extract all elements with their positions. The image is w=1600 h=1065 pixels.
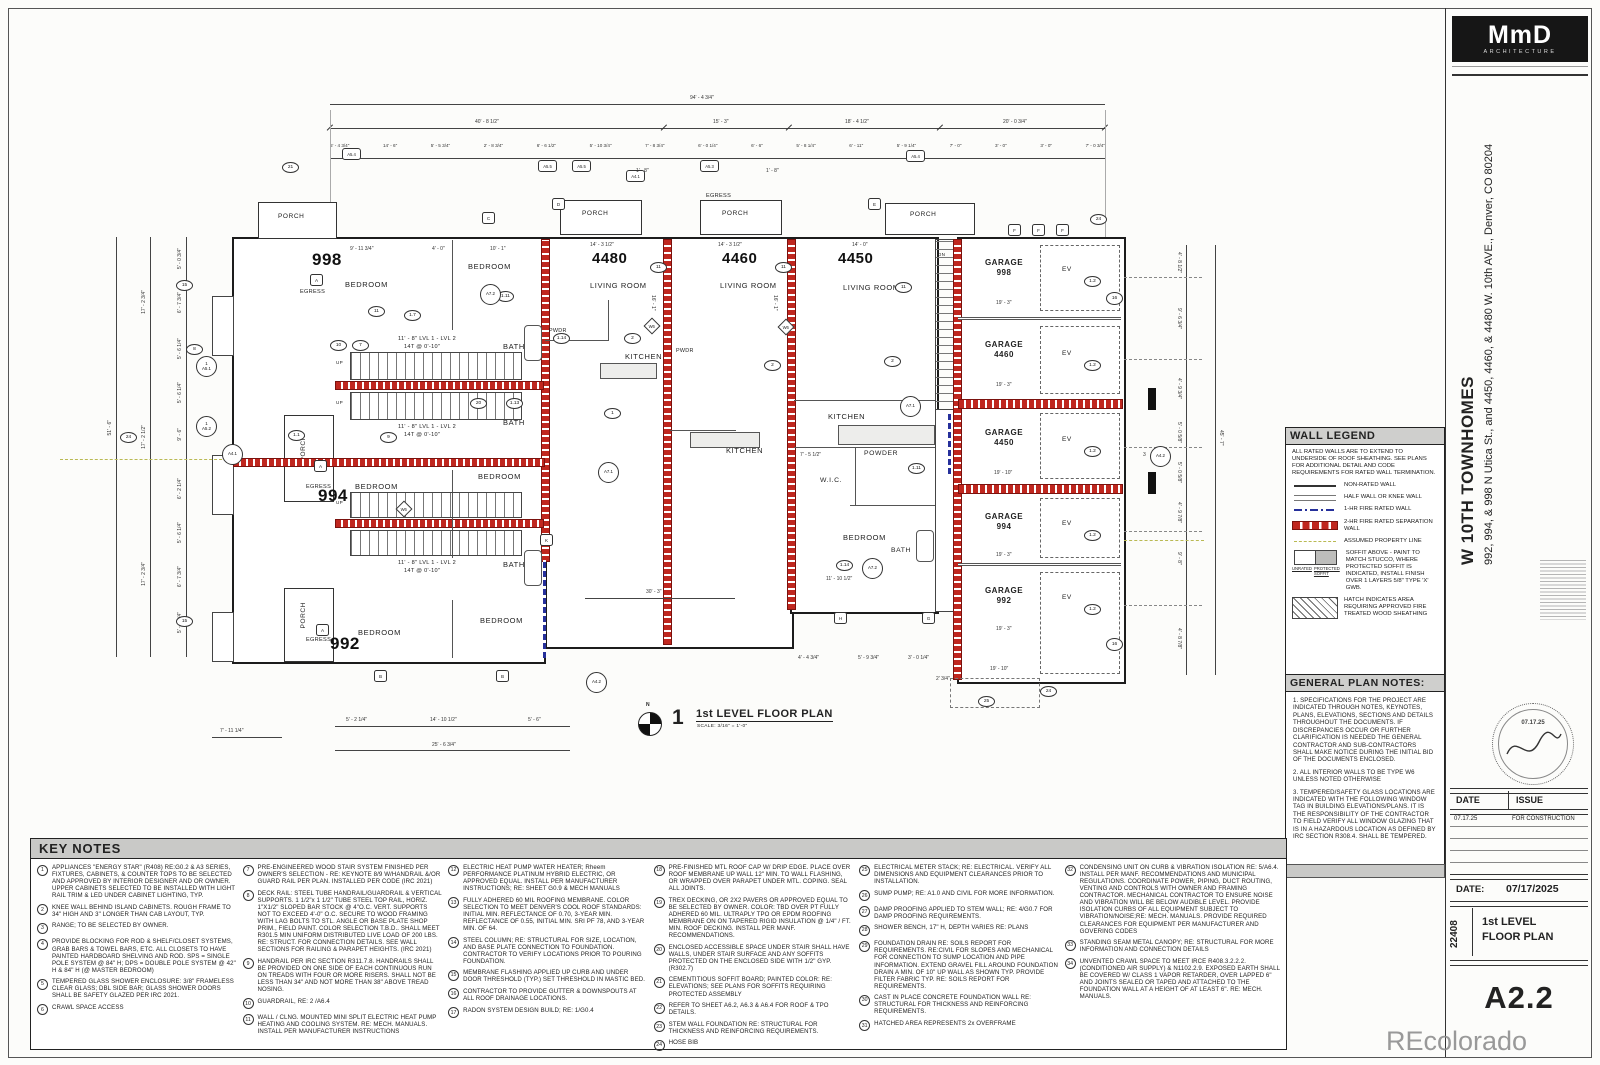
key-notes-column: 12ELECTRIC HEAT PUMP WATER HEATER; Rheem…	[448, 864, 648, 1051]
table-row-line	[1450, 850, 1588, 851]
key-note: 34UNVENTED CRAWL SPACE TO MEET IRCE R408…	[1065, 958, 1282, 1000]
keynote-bubble: 11	[650, 262, 667, 273]
centerline	[1124, 605, 1202, 606]
porch-label: PORCH	[300, 602, 307, 628]
key-note: 1APPLIANCES "ENERGY STAR" (R408) RE:G0.2…	[37, 864, 237, 899]
key-note: 13FULLY ADHERED 60 MIL ROOFING MEMBRANE.…	[448, 897, 648, 932]
dimension-label: 14' - 3 1/2"	[718, 242, 742, 248]
centerline	[1124, 359, 1202, 360]
sheet-title-line1: 1st LEVEL	[1482, 916, 1536, 928]
egress-label: EGRESS	[706, 193, 731, 199]
dimension-label: 5' - 6 1/4"	[177, 522, 183, 543]
key-note: 12ELECTRIC HEAT PUMP WATER HEATER; Rheem…	[448, 864, 648, 892]
dimension-label: 7' - 11 1/4"	[220, 728, 243, 734]
stair-note: 11' - 8" LVL 1 - LVL 2	[398, 560, 456, 566]
key-note: 2KNEE WALL BEHIND ISLAND CABINETS. ROUGH…	[37, 904, 237, 918]
legend-label: HATCH INDICATES AREA REQUIRING APPROVED …	[1344, 597, 1438, 618]
grid-tag: B	[374, 670, 387, 682]
bathtub	[524, 325, 542, 361]
wall-line	[670, 430, 736, 431]
project-number: 22408	[1449, 920, 1460, 948]
room-label: BEDROOM	[345, 280, 388, 289]
stair-note: 14T @ 0'-10"	[404, 432, 440, 438]
fire-wall-2hr	[787, 239, 796, 610]
architect-stamp: 07.17.25	[1492, 703, 1574, 785]
room-label: BEDROOM	[843, 533, 886, 542]
key-note: 16CONTRACTOR TO PROVIDE GUTTER & DOWNSPO…	[448, 988, 648, 1002]
garage-label: GARAGE998	[972, 258, 1036, 278]
stair-note: 14T @ 0'-10"	[404, 344, 440, 350]
issue-header: ISSUE	[1516, 795, 1543, 805]
dimension-label: 10' - 1"	[490, 246, 506, 252]
dimension-label: 19' - 3"	[996, 552, 1012, 558]
legend-label: SOFFIT ABOVE - PAINT TO MATCH STUCCO, WH…	[1346, 550, 1438, 592]
fire-wall-2hr	[958, 484, 1123, 494]
copyright-microtext	[1540, 560, 1586, 620]
dimension-label: 17' - 2 3/4"	[141, 562, 147, 586]
fire-wall-1hr	[948, 412, 951, 474]
keynote-bubble: 1.7	[404, 310, 421, 321]
key-notes-column: 25ELECTRICAL METER STACK; RE: ELECTRICAL…	[859, 864, 1059, 1051]
room-label: W.I.C.	[820, 477, 842, 484]
general-note: 2. ALL INTERIOR WALLS TO BE TYPE W6 UNLE…	[1293, 769, 1437, 784]
garage-label: GARAGE992	[972, 586, 1036, 606]
room-label: BEDROOM	[355, 482, 398, 491]
ev-label: EV	[1062, 520, 1072, 527]
stair-run	[350, 352, 522, 380]
porch-label: PORCH	[910, 211, 936, 218]
key-note: 21CEMENTITIOUS SOFFIT BOARD; PAINTED COL…	[654, 976, 854, 997]
rule	[1450, 874, 1588, 880]
two-hr-wall-symbol	[1292, 521, 1338, 530]
dimension-label: 6' - 7 3/4"	[177, 566, 183, 587]
dimension-label: 19' - 10"	[994, 470, 1012, 476]
keynote-bubble: 7	[352, 340, 369, 351]
dimension-label: 5' - 6 1/4"	[177, 382, 183, 403]
dimension-label: 17' - 2 1/2"	[141, 425, 147, 449]
dn-label: DN	[938, 252, 945, 257]
rule	[1450, 960, 1588, 966]
view-title: 1st LEVEL FLOOR PLAN	[696, 708, 833, 722]
dimension-label: 1' - 8"	[766, 168, 779, 174]
general-note: 3. TEMPERED/SAFETY GLASS LOCATIONS ARE I…	[1293, 789, 1437, 841]
room-label: BATH	[503, 342, 525, 351]
dimension-label: 5' - 9 3/4"	[858, 655, 879, 661]
key-note: 25ELECTRICAL METER STACK; RE: ELECTRICAL…	[859, 864, 1059, 885]
wall-line	[855, 447, 856, 505]
room-label: PWDR	[676, 348, 694, 354]
keynote-bubble: 20	[470, 398, 487, 409]
key-note: 5TEMPERED GLASS SHOWER ENCLOSURE: 3/8" F…	[37, 978, 237, 999]
legend-label: ASSUMED PROPERTY LINE	[1344, 538, 1422, 545]
key-note: 32CONDENSING UNIT ON CURB & VIBRATION IS…	[1065, 864, 1282, 935]
legend-label: 2-HR FIRE RATED SEPARATION WALL	[1344, 519, 1438, 533]
soffit-sub-label: PROTECTED SOFFIT	[1314, 566, 1340, 576]
room-label: BEDROOM	[468, 262, 511, 271]
room-label: BEDROOM	[478, 472, 521, 481]
key-note: 28SHOWER BENCH, 17" H, DEPTH VARIES RE: …	[859, 924, 1059, 936]
legend-row: HATCH INDICATES AREA REQUIRING APPROVED …	[1292, 597, 1438, 619]
project-address: 992, 994, & 998 N Utica St., and 4450, 4…	[1482, 95, 1497, 565]
keynote-bubble: 2	[764, 360, 781, 371]
dimension-label: 9' - 11 3/4"	[350, 246, 373, 252]
key-note: 3RANGE; TO BE SELECTED BY OWNER.	[37, 922, 237, 934]
keynote-bubble: 15	[176, 280, 193, 291]
project-title: W 10TH TOWNHOMES	[1458, 95, 1478, 565]
key-note: 30CAST IN PLACE CONCRETE FOUNDATION WALL…	[859, 994, 1059, 1015]
keynote-bubble: 2	[884, 356, 901, 367]
dimension-line	[330, 104, 1105, 105]
sheet-number: A2.2	[1450, 980, 1588, 1016]
dimension-row: 5' - 4 3/4" 14' - 6" 5' - 5 3/4" 2' - 8 …	[330, 143, 1105, 148]
ev-space	[1040, 498, 1120, 558]
stair-note: 11' - 8" LVL 1 - LVL 2	[398, 424, 456, 430]
meter-stack	[1148, 388, 1156, 410]
fire-wall-2hr	[663, 239, 672, 645]
building-left-block	[232, 237, 546, 664]
dimension-label: 4' - 9 3/4"	[1176, 378, 1182, 399]
general-note: 1. SPECIFICATIONS FOR THE PROJECT ARE IN…	[1293, 697, 1437, 764]
kitchen-island	[838, 425, 935, 445]
wall-legend-intro: ALL RATED WALLS ARE TO EXTEND TO UNDERSI…	[1292, 449, 1438, 477]
dimension-line	[1215, 245, 1216, 675]
detail-marker: A7.1	[598, 462, 619, 483]
ev-tag: 1.2	[1084, 276, 1101, 287]
room-label: BEDROOM	[480, 616, 523, 625]
wall-line	[452, 240, 453, 330]
dimension-label: 7' - 5 1/2"	[800, 452, 821, 458]
keynote-bubble: 11	[775, 262, 792, 273]
room-label: BEDROOM	[358, 628, 401, 637]
fire-wall-2hr	[958, 399, 1123, 409]
key-note: 17RADON SYSTEM DESIGN BUILD; RE: 1/G0.4	[448, 1007, 648, 1019]
dimension-label: 19' - 10"	[990, 666, 1008, 672]
key-note: 31HATCHED AREA REPRESENTS 2x OVERFRAME	[859, 1020, 1059, 1032]
window-bay	[212, 612, 234, 662]
key-notes-panel: KEY NOTES 1APPLIANCES "ENERGY STAR" (R40…	[30, 838, 1287, 1050]
keynote-bubble: 21	[282, 162, 299, 173]
dimension-line	[116, 237, 117, 657]
key-notes-title: KEY NOTES	[31, 839, 1286, 859]
keynote-bubble: 1.14	[553, 333, 570, 344]
key-notes-column: 32CONDENSING UNIT ON CURB & VIBRATION IS…	[1065, 864, 1282, 1051]
unit-label-4450: 4450	[838, 250, 873, 267]
overhang-dashed	[950, 678, 1040, 708]
soffit-symbol: UNRATED PROTECTED SOFFIT	[1292, 550, 1340, 576]
grid-tag: C	[482, 212, 495, 224]
wall-line	[452, 600, 453, 658]
issue-date-header: DATE	[1456, 795, 1480, 805]
ev-space	[1040, 413, 1120, 479]
dimension-line	[335, 726, 570, 727]
unit-label-998: 998	[312, 250, 342, 270]
key-note: 29FOUNDATION DRAIN RE: SOILS REPORT FOR …	[859, 940, 1059, 989]
table-row-line	[1450, 862, 1588, 863]
dimension-line	[335, 750, 570, 751]
signature-icon	[1493, 704, 1573, 784]
wall-line	[794, 447, 935, 448]
grid-tag: K	[540, 534, 553, 546]
key-note: 22REFER TO SHEET A6.2, A6.3 & A6.4 FOR R…	[654, 1002, 854, 1016]
ev-label: EV	[1062, 350, 1072, 357]
ev-space	[1040, 572, 1120, 674]
logo-address-microtext	[1452, 66, 1588, 69]
section-marker: 1A5.2	[196, 416, 217, 437]
grid-tag: A	[316, 624, 329, 636]
key-note: 26SUMP PUMP; RE: A1.0 AND CIVIL FOR MORE…	[859, 890, 1059, 902]
keynote-bubble: 10	[330, 340, 347, 351]
keynote-bubble: 9	[380, 432, 397, 443]
ev-tag: 1.2	[1084, 530, 1101, 541]
fire-wall-2hr	[335, 519, 544, 528]
dimension-label: 6' - 2 1/4"	[177, 478, 183, 499]
porch	[560, 200, 642, 235]
half-wall-symbol	[1292, 495, 1338, 501]
keynote-bubble: 1.13	[506, 398, 523, 409]
key-note: 10GUARDRAIL, RE: 2 /A6.4	[243, 998, 443, 1010]
recolorado-watermark: REcolorado	[1386, 1026, 1527, 1057]
unit-label-4480: 4480	[592, 250, 627, 267]
stair-note: 11' - 8" LVL 1 - LVL 2	[398, 336, 456, 342]
north-arrow-icon	[638, 712, 662, 736]
dimension-label: 20' - 0 3/4"	[1003, 119, 1027, 125]
bathtub	[916, 530, 934, 562]
dimension-label: 9' - 8"	[1176, 552, 1182, 565]
stair-run	[350, 530, 522, 556]
legend-row: 1-HR FIRE RATED WALL	[1292, 506, 1438, 513]
keynote-bubble: 8	[186, 344, 203, 355]
porch-label: PORCH	[722, 210, 748, 217]
key-note: 6CRAWL SPACE ACCESS	[37, 1004, 237, 1016]
table-row-line	[1450, 838, 1588, 839]
dimension-label: 5' - 0 3/4"	[177, 248, 183, 269]
rule	[1450, 788, 1588, 794]
table-row-line	[1450, 826, 1588, 827]
dimension-line	[150, 237, 151, 657]
date-label: DATE:	[1456, 884, 1484, 895]
ev-label: EV	[1062, 266, 1072, 273]
grid-tag: E	[868, 198, 881, 210]
keynote-bubble: 11	[368, 306, 385, 317]
rule	[1450, 809, 1588, 815]
one-hr-wall-symbol	[1292, 509, 1338, 511]
rule	[1450, 901, 1588, 907]
window-bay	[212, 296, 234, 356]
grid-tag: A	[310, 274, 323, 286]
porch	[885, 203, 975, 235]
dimension-label: 40' - 8 1/2"	[475, 119, 499, 125]
key-note: 24HOSE BIB	[654, 1039, 854, 1051]
key-note: 14STEEL COLUMN; RE: STRUCTURAL FOR SIZE,…	[448, 937, 648, 965]
dimension-label: 4' - 9 7/8"	[1176, 502, 1182, 523]
detail-marker: A7.1	[900, 396, 921, 417]
key-note: 4PROVIDE BLOCKING FOR ROD & SHELF/CLOSET…	[37, 938, 237, 973]
key-note: 11WALL / CLNG. MOUNTED MINI SPLIT ELECTR…	[243, 1014, 443, 1035]
wall-legend-panel: WALL LEGEND ALL RATED WALLS ARE TO EXTEN…	[1285, 427, 1445, 676]
sheet-title-line2: FLOOR PLAN	[1482, 931, 1554, 943]
dimension-label: 17' - 2 3/4"	[141, 290, 147, 314]
dimension-label: 4' - 4 3/4"	[798, 655, 819, 661]
ev-label: EV	[1062, 436, 1072, 443]
elevation-tag: A5.5	[538, 160, 557, 172]
dimension-label: 14' - 10 1/2"	[430, 717, 457, 723]
divider	[1472, 908, 1473, 956]
keynote-bubble: 11	[895, 282, 912, 293]
date-value: 07/17/2025	[1506, 883, 1559, 895]
elevation-tag: A5.5	[572, 160, 591, 172]
dimension-label: 30' - 3"	[646, 589, 662, 595]
room-label: BATH	[503, 560, 525, 569]
dimension-label: 16' - 1"	[772, 295, 778, 311]
keynote-bubble: 15	[176, 616, 193, 627]
table-divider	[1508, 791, 1509, 809]
grid-tag: B	[496, 670, 509, 682]
room-label: LIVING ROOM	[590, 281, 647, 290]
fire-wall-2hr	[335, 381, 544, 390]
keynote-bubble: 16	[1106, 638, 1123, 651]
view-scale: SCALE: 3/16" = 1'-0"	[697, 724, 747, 729]
dimension-label: 18' - 4 1/2"	[845, 119, 869, 125]
legend-row: HALF WALL OR KNEE WALL	[1292, 494, 1438, 501]
keynote-bubble: 1.1	[288, 430, 305, 441]
dimension-label: 19' - 3"	[996, 300, 1012, 306]
logo-text: MmD	[1488, 23, 1552, 48]
porch	[258, 202, 337, 239]
egress-label: EGRESS	[306, 637, 331, 643]
fire-wall-2hr	[541, 239, 550, 562]
key-note: 27DAMP PROOFING APPLIED TO STEM WALL; RE…	[859, 906, 1059, 920]
detail-marker: A4.2	[586, 672, 607, 693]
dimension-line	[330, 158, 1105, 159]
porch-label: PORCH	[278, 213, 304, 220]
room-label: LIVING ROOM	[720, 281, 777, 290]
detail-marker: A7.2	[862, 558, 883, 579]
room-label: KITCHEN	[828, 412, 865, 421]
ev-tag: 1.2	[1084, 446, 1101, 457]
up-label: UP	[336, 400, 343, 405]
dimension-label: 4' - 0"	[432, 246, 445, 252]
dimension-label: 6' - 7 3/4"	[177, 292, 183, 313]
ev-label: EV	[1062, 594, 1072, 601]
view-number: 1	[672, 706, 684, 730]
dimension-label: 19' - 3"	[996, 382, 1012, 388]
wall-line	[850, 505, 935, 506]
centerline	[1124, 531, 1202, 532]
grid-tag: G	[922, 612, 935, 624]
assumed-property-line	[60, 459, 232, 460]
dimension-label: 5' - 2 1/4"	[346, 717, 367, 723]
porch	[700, 200, 782, 235]
keynote-bubble: 24	[120, 432, 137, 443]
key-note: 20ENCLOSED ACCESSIBLE SPACE UNDER STAIR …	[654, 944, 854, 972]
egress-label: EGRESS	[300, 289, 325, 295]
dimension-label: 19' - 3"	[996, 626, 1012, 632]
key-note: 8DECK RAIL: STEEL TUBE HANDRAIL/GUARDRAI…	[243, 890, 443, 954]
stair-run	[350, 492, 522, 518]
keynote-bubble: 2	[624, 333, 641, 344]
legend-row: ASSUMED PROPERTY LINE	[1292, 538, 1438, 545]
room-label: BATH	[503, 418, 525, 427]
kitchen-counter	[600, 363, 657, 379]
unit-label-4460: 4460	[722, 250, 757, 267]
panel-footer-bar	[1285, 864, 1445, 878]
egress-label: EGRESS	[306, 484, 331, 490]
grid-tag: F	[1032, 224, 1045, 236]
grid-tag: D	[552, 198, 565, 210]
dimension-label: 14' - 0"	[852, 242, 868, 248]
dimension-label: 2' 3/4"	[936, 676, 950, 682]
keynote-bubble: 1.11	[908, 463, 925, 474]
key-note: 7PRE-ENGINEERED WOOD STAIR SYSTEM FINISH…	[243, 864, 443, 885]
non-rated-wall-symbol	[1292, 485, 1338, 487]
fire-wall-2hr	[953, 239, 962, 680]
issue-row-label: FOR CONSTRUCTION	[1512, 816, 1575, 822]
section-marker: A4.1	[222, 444, 243, 465]
legend-row: UNRATED PROTECTED SOFFIT SOFFIT ABOVE - …	[1292, 550, 1438, 592]
property-line-symbol	[1292, 541, 1338, 542]
dimension-label: 51' - 6"	[107, 420, 113, 436]
room-label: BATH	[891, 547, 911, 554]
soffit-sub-label: UNRATED	[1292, 566, 1312, 576]
dimension-line	[186, 237, 187, 657]
grid-tag: H	[834, 612, 847, 624]
wall-legend-title: WALL LEGEND	[1286, 428, 1444, 445]
elevation-tag: A5.3	[700, 160, 719, 172]
garage-label: GARAGE4460	[972, 340, 1036, 360]
issue-row-date: 07.17.25	[1454, 816, 1477, 822]
dimension-label: 16' - 1"	[650, 295, 656, 311]
key-note: 23STEM WALL FOUNDATION RE: STRUCTURAL FO…	[654, 1021, 854, 1035]
dimension-line	[330, 128, 1105, 129]
key-notes-column: 18PRE-FINISHED MTL ROOF CAP W/ DRIP EDGE…	[654, 864, 854, 1051]
centerline	[1124, 277, 1202, 278]
keynote-bubble: 1	[604, 408, 621, 419]
keynote-bubble: 24	[1040, 686, 1057, 697]
wall-line	[608, 300, 609, 341]
dimension-label: 9' - 6"	[177, 428, 183, 441]
grid-tag: F	[1008, 224, 1021, 236]
dimension-label: 25' - 6 3/4"	[432, 742, 456, 748]
key-notes-column: 1APPLIANCES "ENERGY STAR" (R408) RE:G0.2…	[37, 864, 237, 1051]
drawing-sheet: 94' - 4 3/4" 40' - 8 1/2" 15' - 3" 18' -…	[0, 0, 1600, 1065]
section-marker: 1A5.1	[196, 356, 217, 377]
general-notes-title: GENERAL PLAN NOTES:	[1286, 675, 1444, 692]
logo-subtext: ARCHITECTURE	[1483, 49, 1556, 55]
elevation-tag: A5.4	[342, 148, 361, 160]
keynote-bubble: 1.14	[836, 560, 853, 571]
dimension-label: 3' - 0 1/4"	[908, 655, 929, 661]
garage-label: GARAGE4450	[972, 428, 1036, 448]
key-note: 19TREX DECKING, OR 2X2 PAVERS OR APPROVE…	[654, 897, 854, 939]
wall-line	[958, 317, 1121, 320]
title-block-divider	[1445, 8, 1446, 1057]
fire-wall-2hr	[233, 458, 545, 467]
porch-label: PORCH	[582, 210, 608, 217]
legend-row: NON-RATED WALL	[1292, 482, 1438, 489]
bathtub	[524, 550, 542, 586]
room-label: KITCHEN	[625, 352, 662, 361]
fire-wall-1hr	[543, 560, 546, 658]
dimension-line	[585, 598, 735, 599]
dimension-label: 45' - 7"	[1218, 430, 1224, 446]
room-label: POWDER	[864, 450, 898, 457]
hatch-symbol	[1292, 597, 1338, 619]
room-label: LIVING ROOM	[843, 283, 900, 292]
dimension-label: 4' - 8 1/2"	[1176, 252, 1182, 273]
stair-note: 14T @ 0'-10"	[404, 568, 440, 574]
meter-stack	[1148, 472, 1156, 494]
dimension-label: 5' - 0 5/8"	[1176, 422, 1182, 443]
